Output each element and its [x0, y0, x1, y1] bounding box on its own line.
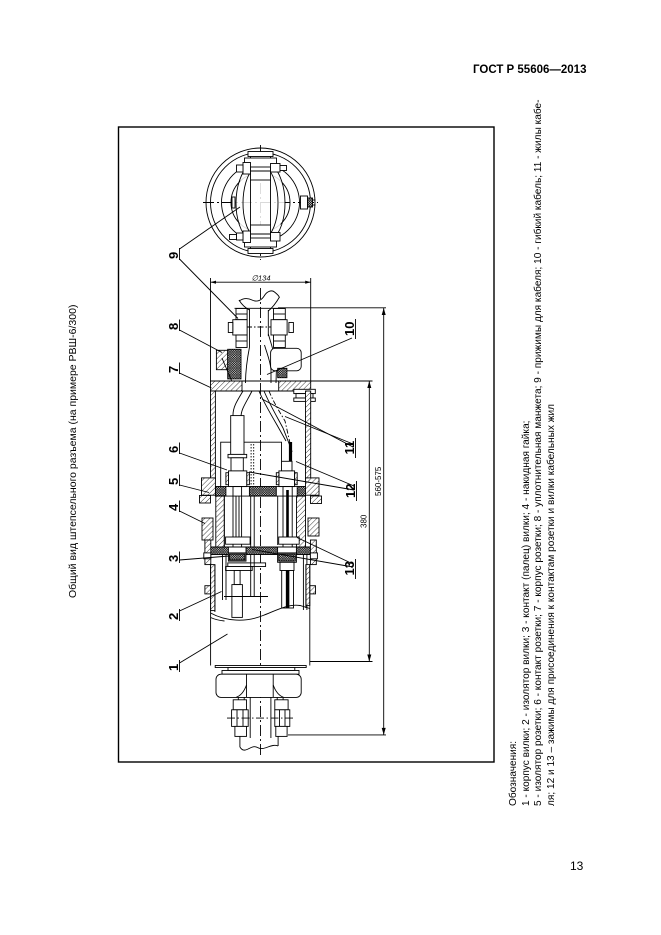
svg-text:2: 2	[166, 613, 181, 620]
svg-text:13: 13	[342, 561, 357, 575]
svg-text:6: 6	[166, 446, 181, 453]
svg-text:7: 7	[166, 366, 181, 373]
svg-text:4: 4	[166, 503, 181, 511]
svg-text:380: 380	[360, 514, 369, 528]
svg-text:∅134: ∅134	[251, 274, 270, 283]
svg-text:8: 8	[166, 323, 181, 330]
svg-text:560-575: 560-575	[374, 466, 383, 496]
svg-text:1: 1	[166, 664, 181, 671]
svg-text:5: 5	[166, 478, 181, 485]
svg-text:9: 9	[166, 252, 181, 259]
svg-text:12: 12	[343, 484, 358, 498]
svg-text:10: 10	[342, 322, 357, 336]
svg-text:3: 3	[166, 555, 181, 562]
